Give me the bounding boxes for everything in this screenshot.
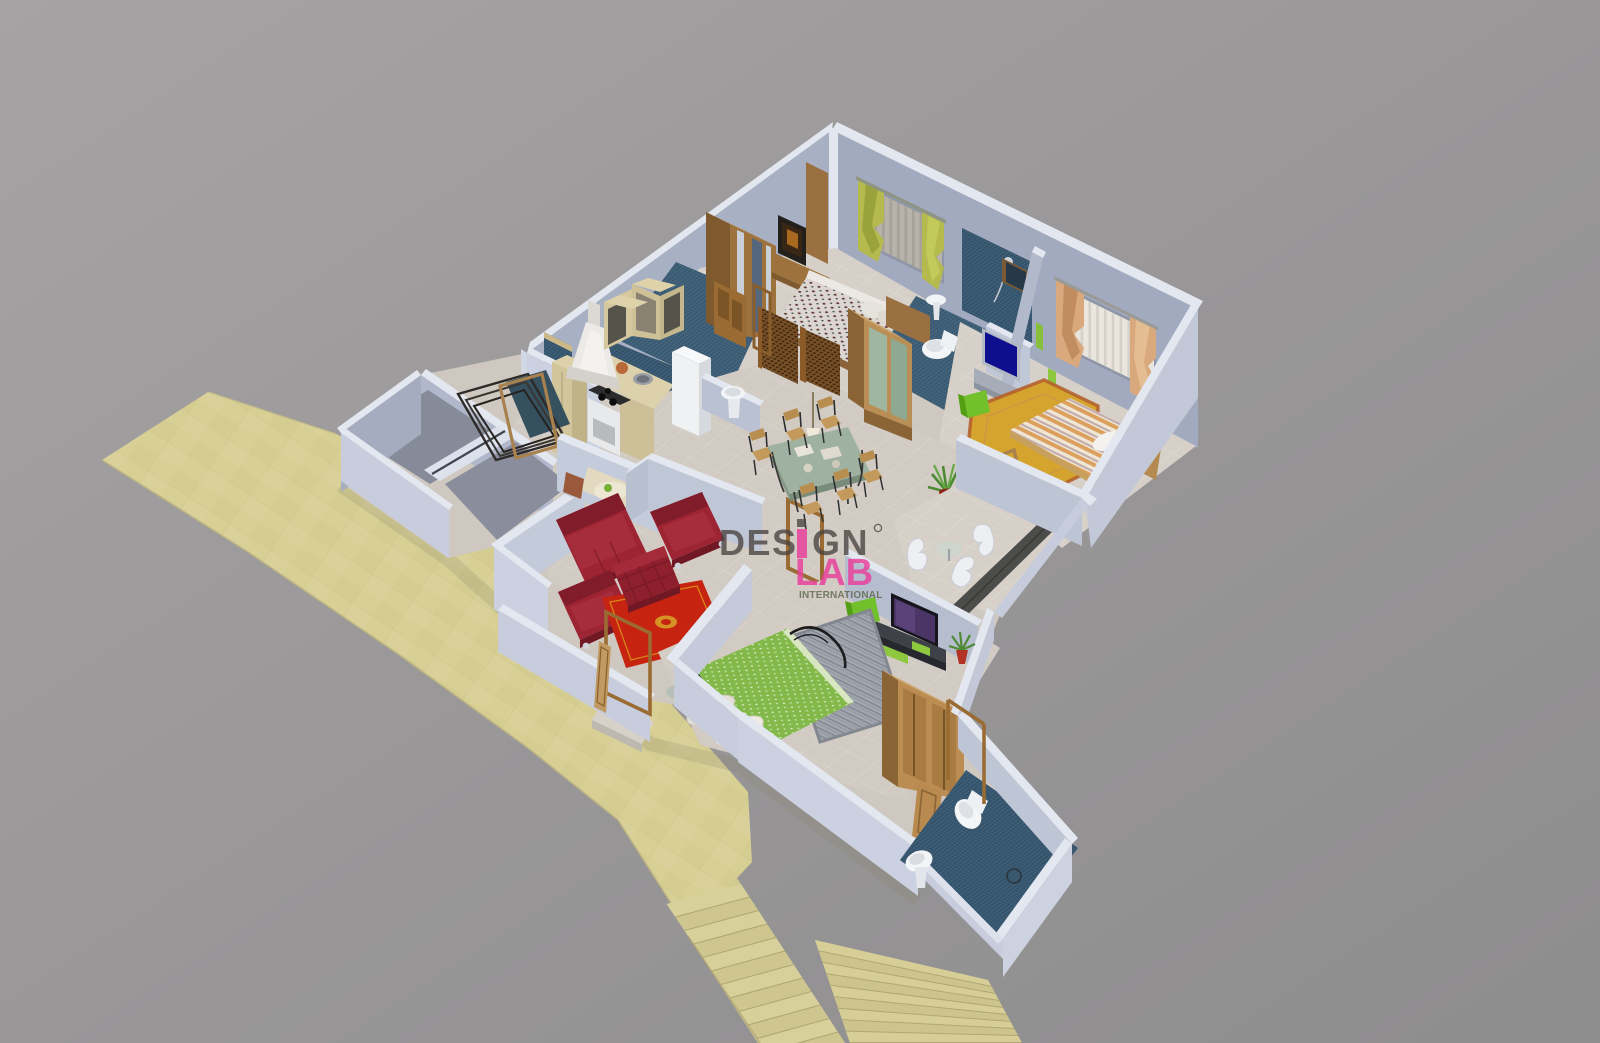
svg-text:LAB: LAB bbox=[795, 552, 873, 594]
svg-text:INTERNATIONAL: INTERNATIONAL bbox=[799, 590, 883, 601]
svg-text:DES: DES bbox=[719, 522, 798, 563]
